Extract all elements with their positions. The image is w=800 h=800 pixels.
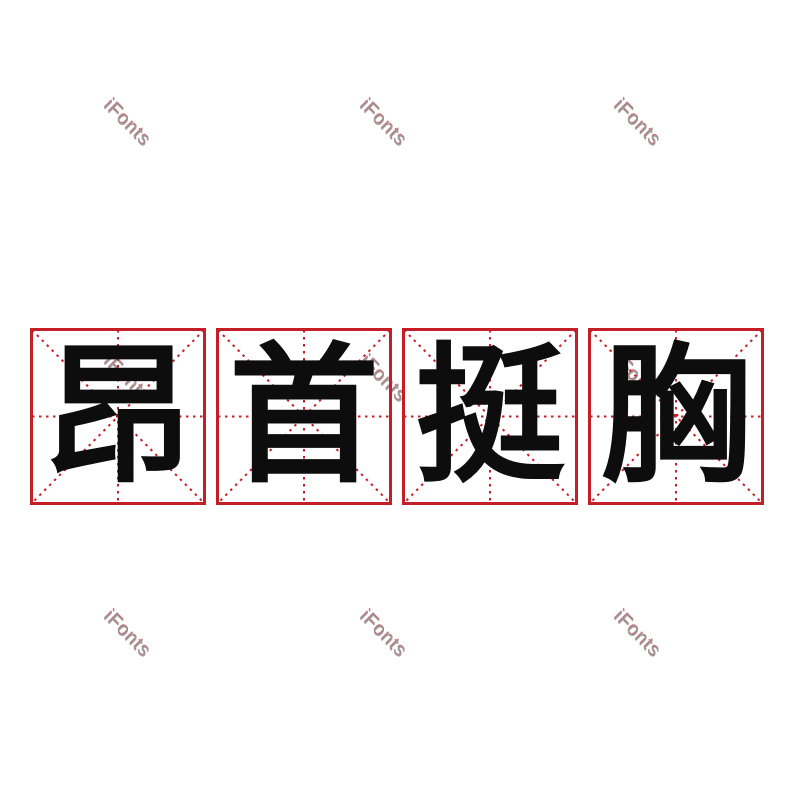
hanzi-cell-4: 胸	[588, 328, 764, 505]
hanzi-cell-2: 首	[216, 328, 392, 505]
hanzi-character: 昂	[30, 328, 206, 505]
phrase-grid-row: 昂 首 挺	[0, 0, 800, 800]
hanzi-character: 挺	[402, 328, 578, 505]
hanzi-cell-3: 挺	[402, 328, 578, 505]
canvas: iFonts iFonts iFonts iFonts iFonts iFont…	[0, 0, 800, 800]
hanzi-character: 首	[216, 328, 392, 505]
hanzi-character: 胸	[588, 328, 764, 505]
hanzi-cell-1: 昂	[30, 328, 206, 505]
